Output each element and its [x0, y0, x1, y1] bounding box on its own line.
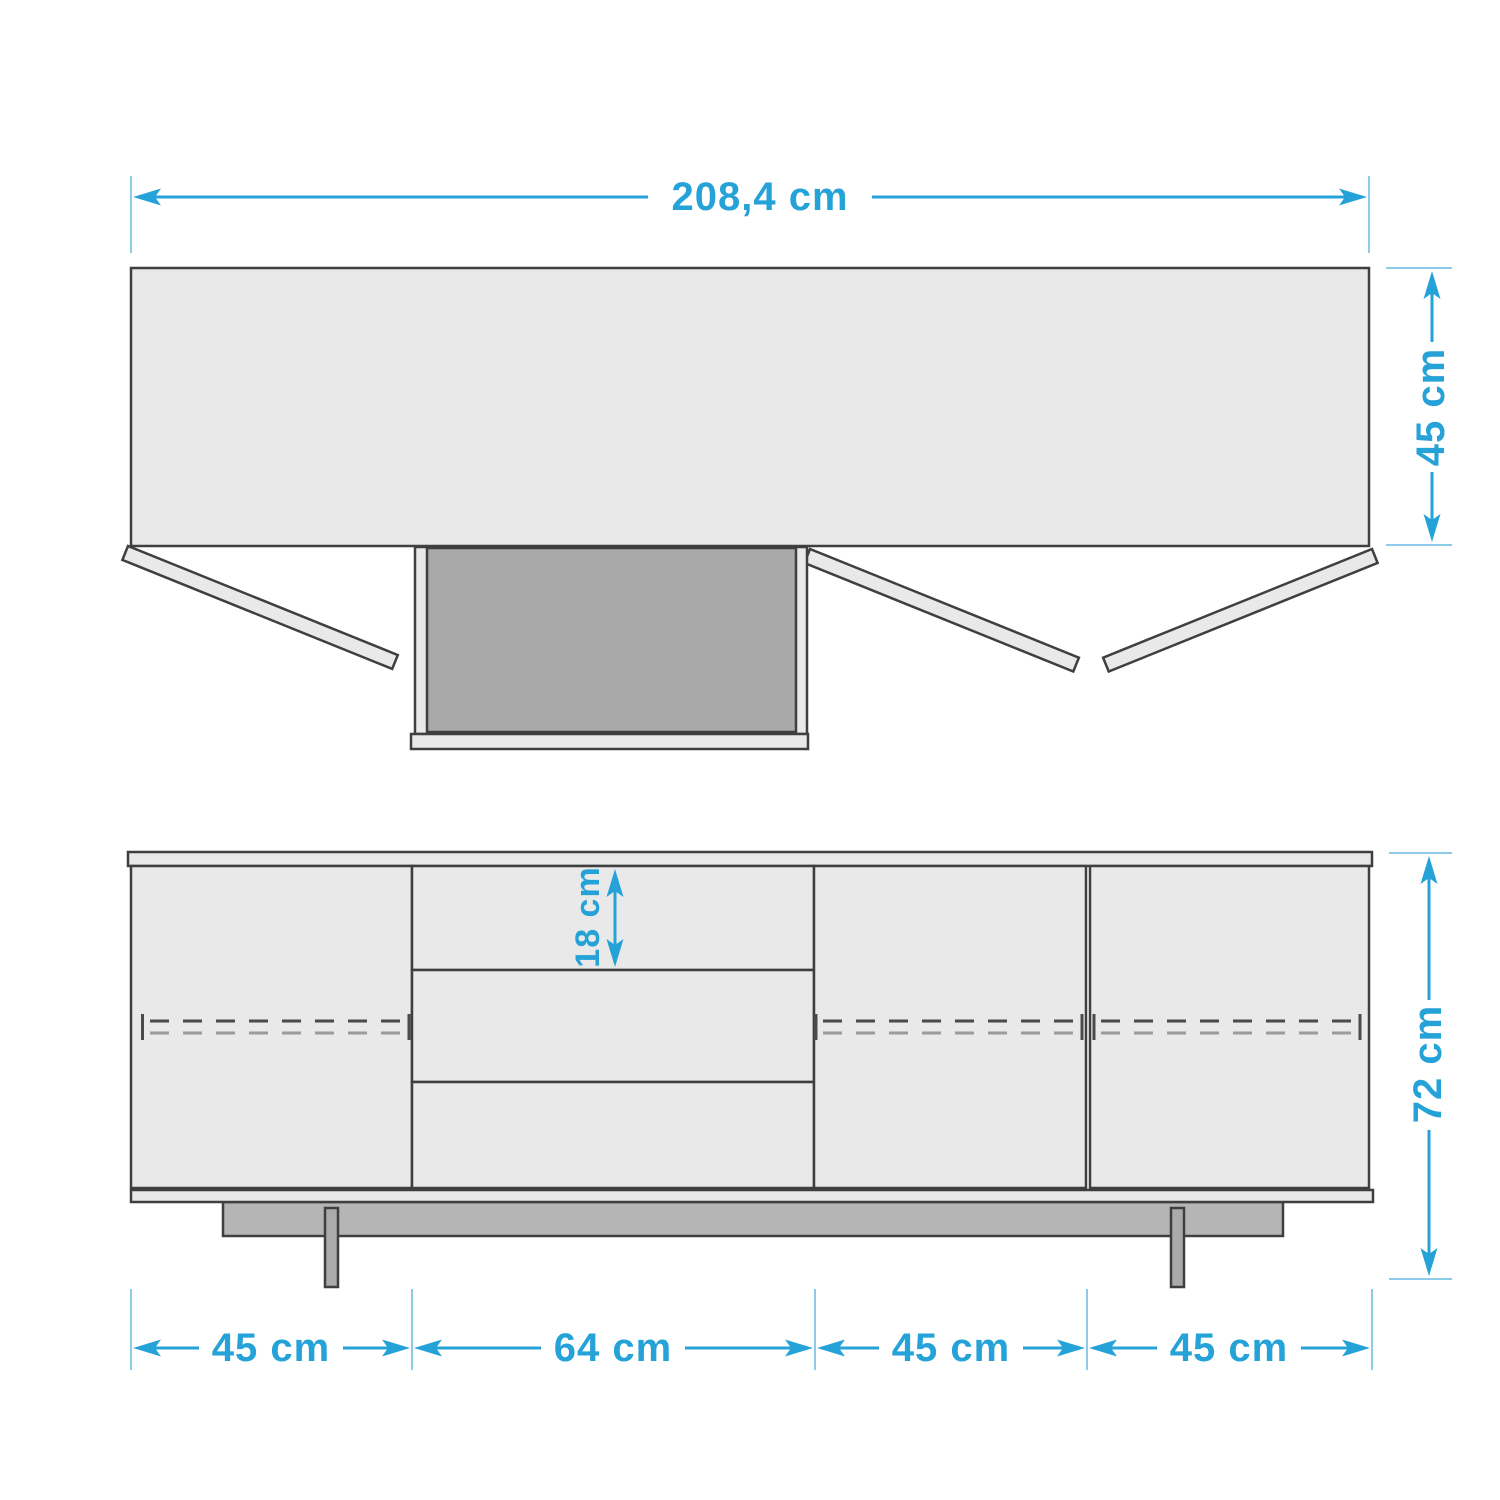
dimension-drawing: 208,4 cm 45 cm 18 cm 72 cm 45 cm 64 cm 4…	[0, 0, 1500, 1500]
front-view-middle-door	[814, 866, 1086, 1188]
top-view-middle-door-open	[804, 549, 1079, 672]
top-view	[122, 268, 1377, 749]
top-view-drawer-interior	[427, 548, 796, 732]
drawing-canvas	[0, 0, 1500, 1500]
front-view-left-leg	[325, 1208, 338, 1287]
front-view-plinth	[223, 1202, 1283, 1236]
section-width-label-3: 45 cm	[892, 1328, 1010, 1368]
front-view-right-leg	[1171, 1208, 1184, 1287]
section-width-label-2: 64 cm	[554, 1328, 672, 1368]
top-view-body	[131, 268, 1369, 546]
front-view-right-door	[1090, 866, 1369, 1188]
depth-label: 45 cm	[1411, 348, 1451, 466]
front-view-drawer-2	[412, 970, 814, 1082]
top-view-drawer-front-panel	[411, 734, 808, 749]
front-view-left-door	[131, 866, 412, 1188]
section-width-label-1: 45 cm	[212, 1328, 330, 1368]
front-view-drawer-3	[412, 1082, 814, 1188]
front-view-bottom-panel	[131, 1190, 1373, 1202]
total-width-label: 208,4 cm	[671, 177, 848, 217]
drawer-height-label: 18 cm	[571, 866, 605, 967]
total-height-label: 72 cm	[1408, 1005, 1448, 1123]
front-view	[128, 852, 1373, 1287]
top-view-left-door-open	[122, 546, 397, 669]
front-view-top-panel	[128, 852, 1372, 866]
section-width-label-4: 45 cm	[1170, 1328, 1288, 1368]
top-view-right-door-open	[1103, 549, 1378, 672]
